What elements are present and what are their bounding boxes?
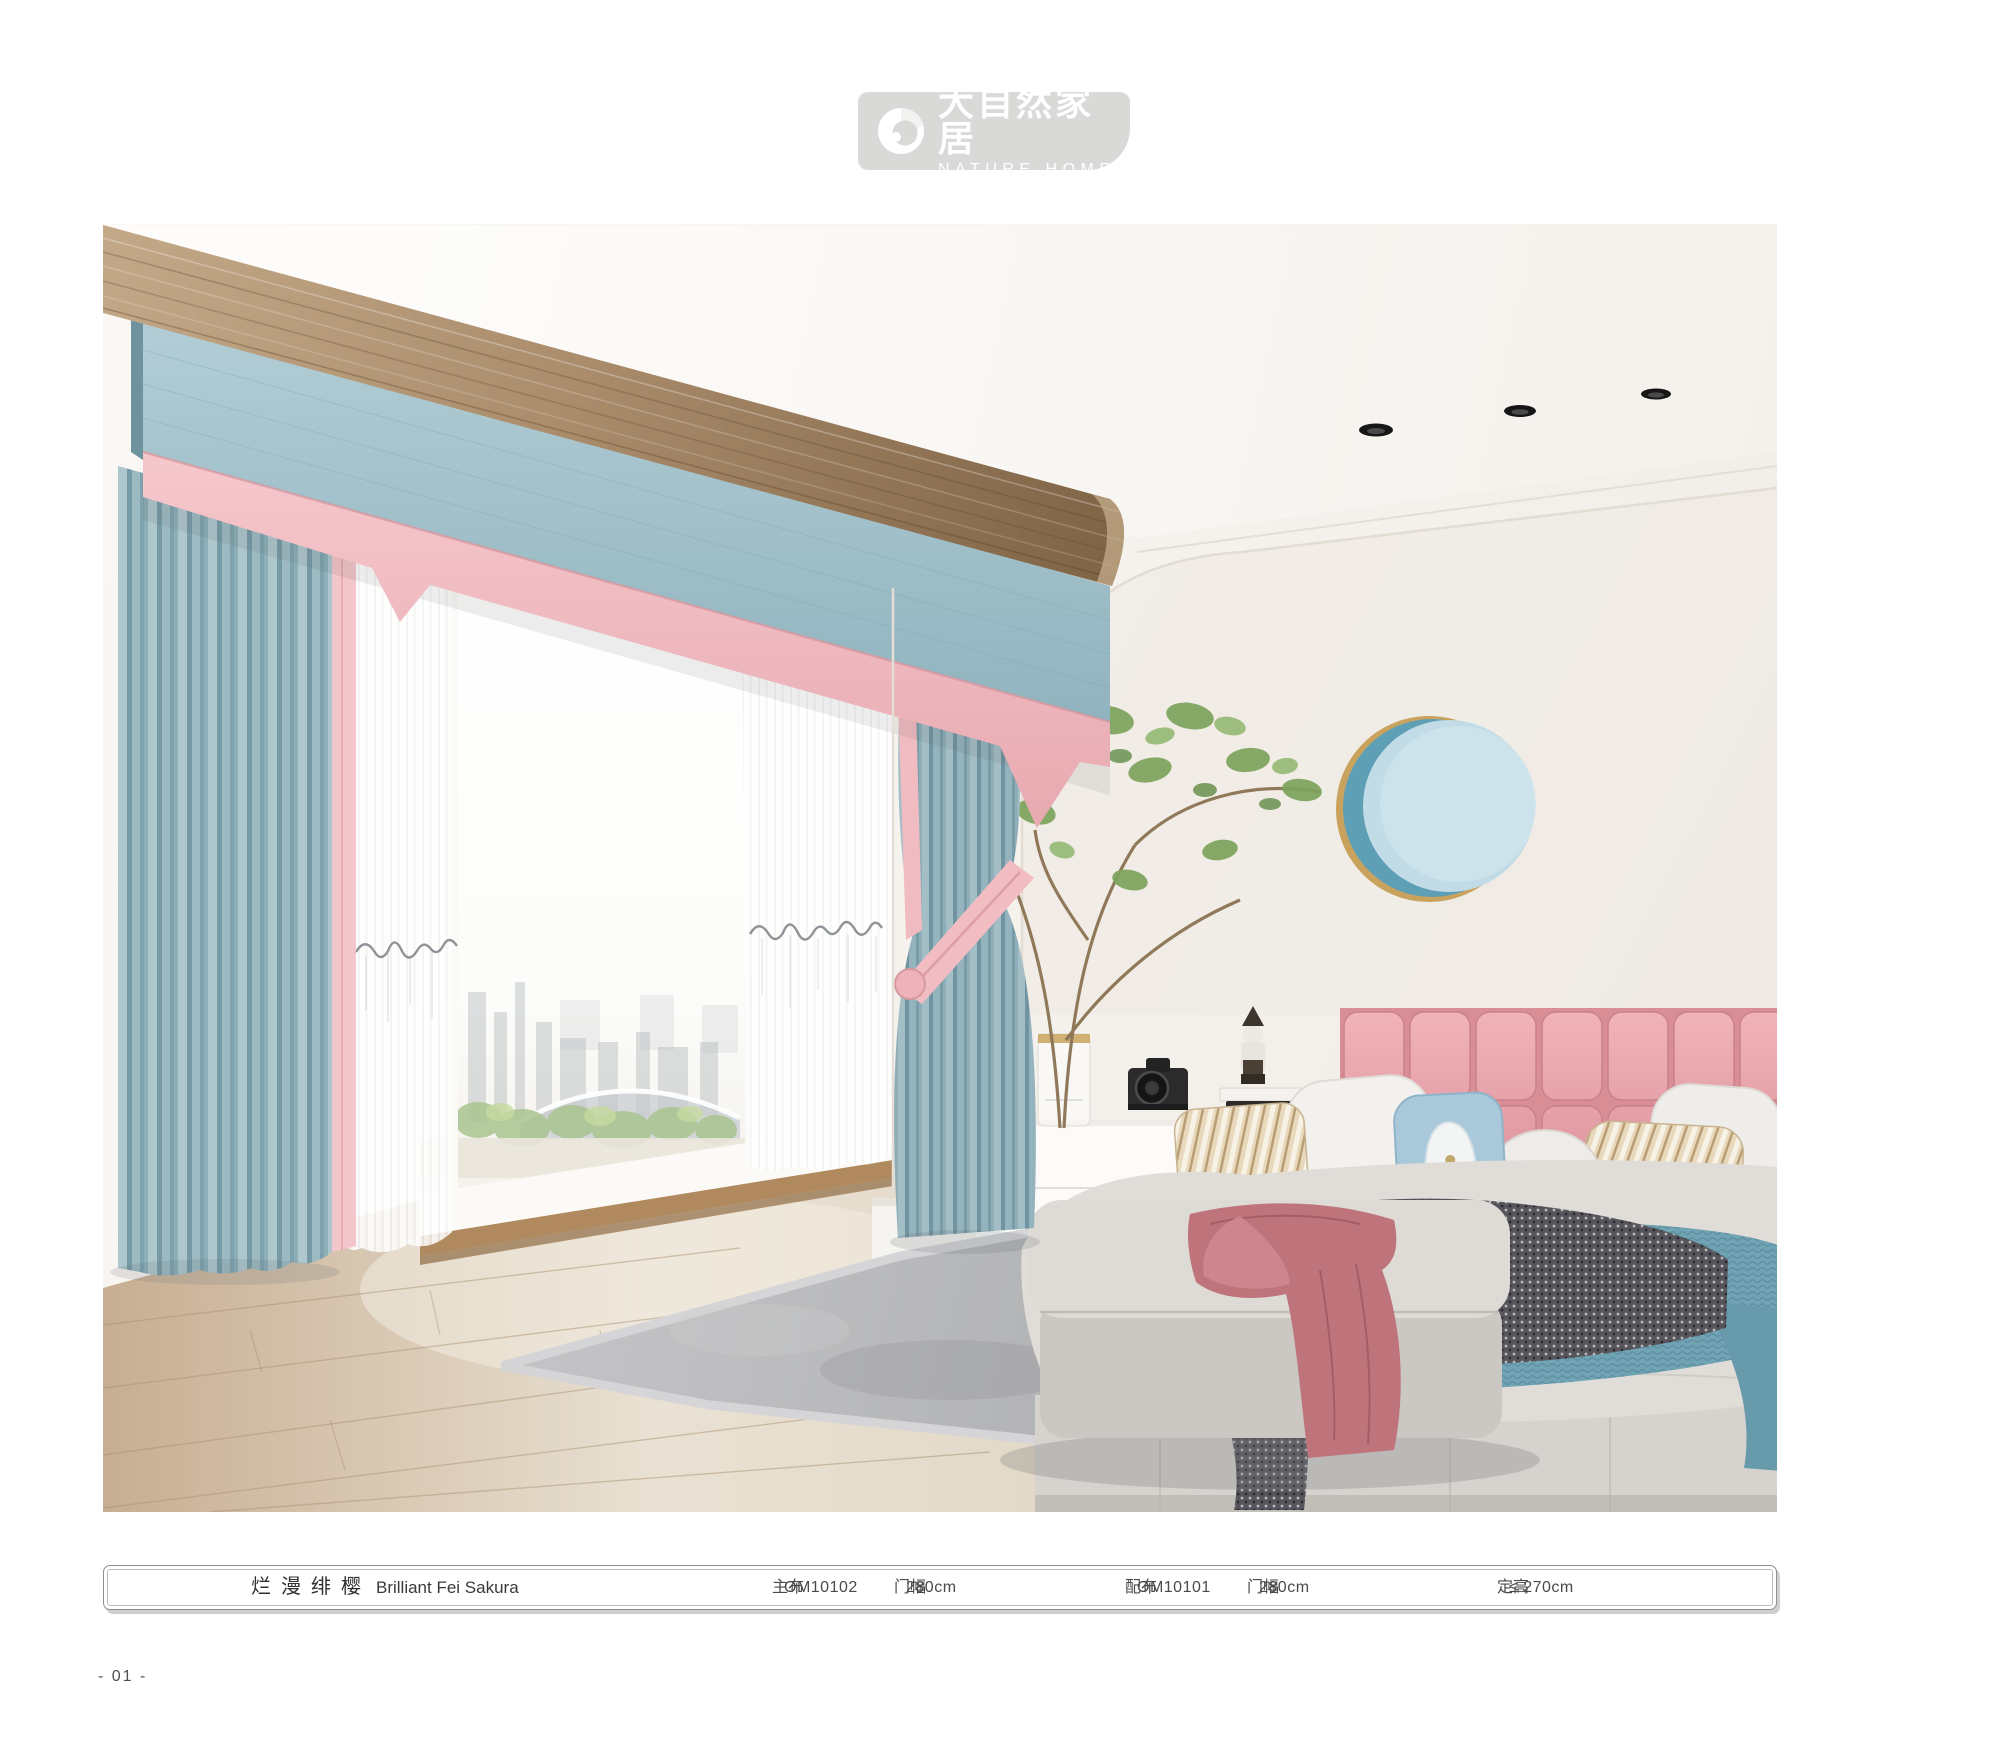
sheer-panel-right [742, 650, 895, 1171]
room-photo [103, 224, 1777, 1512]
product-name-en: Brilliant Fei Sakura [376, 1566, 519, 1609]
spotlight-icon [1359, 424, 1393, 437]
brand-logo: 大自然家居 NATURE HOME [858, 92, 1130, 170]
curtain-left-pink-edge [332, 526, 356, 1252]
spotlight-icon [1641, 389, 1671, 400]
brand-name-en: NATURE HOME [938, 162, 1130, 178]
product-info-bar: 烂漫绯樱 Brilliant Fei Sakura 主布OM10102 门幅28… [103, 1565, 1777, 1610]
page-number: - 01 - [98, 1668, 147, 1686]
bedroom-scene [103, 224, 1777, 1512]
brand-name-zh: 大自然家居 [938, 85, 1130, 157]
product-name-zh: 烂漫绯樱 [251, 1566, 371, 1609]
spotlight-icon [1504, 405, 1536, 417]
sheer-panel-left [348, 535, 457, 1252]
catalog-page: 大自然家居 NATURE HOME [0, 0, 2000, 1755]
curtain-left [110, 466, 356, 1285]
nature-ring-icon [874, 104, 928, 158]
